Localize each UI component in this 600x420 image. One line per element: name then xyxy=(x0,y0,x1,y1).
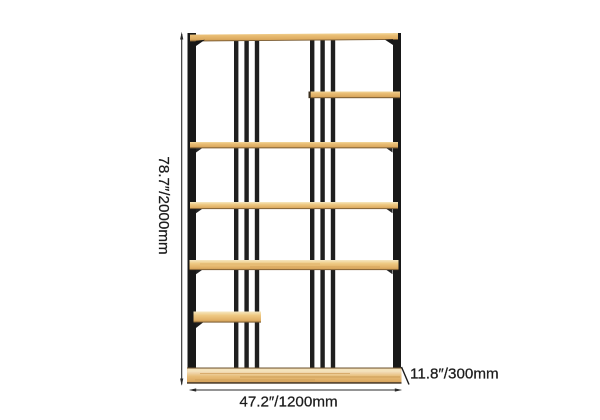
svg-text:11.8″/300mm: 11.8″/300mm xyxy=(410,365,499,382)
svg-text:47.2″/1200mm: 47.2″/1200mm xyxy=(239,394,337,411)
svg-text:78.7″/2000mm: 78.7″/2000mm xyxy=(155,156,172,254)
